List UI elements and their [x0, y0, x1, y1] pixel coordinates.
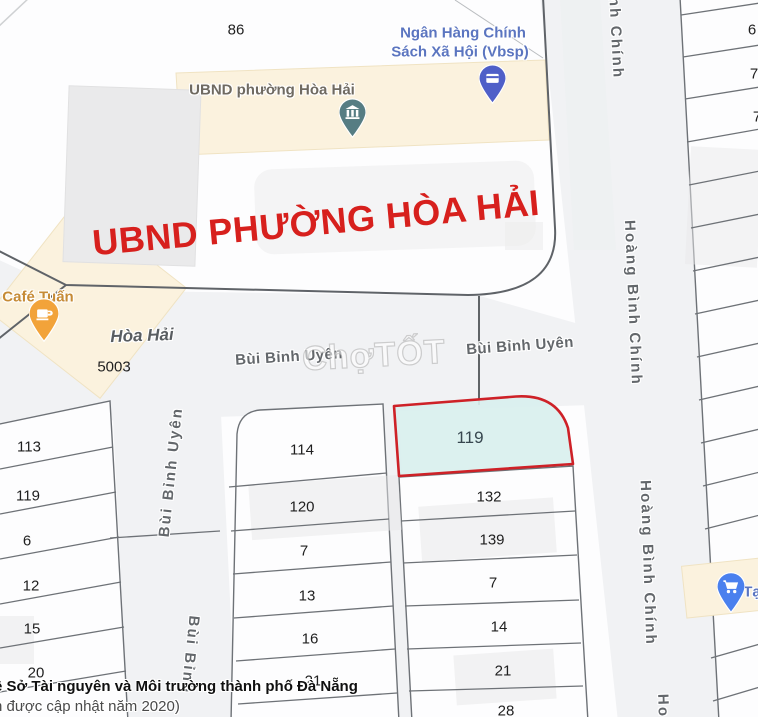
parcel-column-middle	[231, 404, 399, 717]
parcel-label-86: 86	[228, 22, 245, 39]
parcel-label: 28	[498, 703, 515, 717]
road-casing-topleft	[0, 0, 30, 28]
parcel-label: 16	[302, 631, 319, 648]
chotot-watermark: ChợTỐT	[301, 333, 446, 379]
cadastral-map[interactable]: 86 Ngân Hàng Chính Sách Xã Hội (Vbsp) UB…	[0, 0, 758, 717]
poi-bank-name-line1: Ngân Hàng Chính	[400, 24, 526, 43]
parcel-label: 7	[753, 109, 758, 126]
parcel-label: 120	[289, 499, 314, 516]
street-label-hoang-binh-chinh-d: Ho	[654, 694, 672, 717]
parcel-label: 6	[23, 533, 31, 550]
parcel-label: 132	[476, 489, 501, 506]
store-marker-pin[interactable]	[717, 572, 745, 613]
poi-store-name: Tạ	[743, 583, 758, 602]
parcel-label: 21	[495, 663, 512, 680]
parcel-label: 14	[491, 619, 508, 636]
parcel-label: 119	[16, 488, 40, 505]
locality-label: Hòa Hải	[110, 325, 174, 347]
parcel-label-highlight: 119	[456, 428, 483, 448]
parcel-label: 7	[300, 543, 308, 560]
poi-bank-name-line2: Sách Xã Hội (Vbsp)	[391, 43, 529, 62]
parcel-label: 12	[23, 578, 40, 595]
parcel-label: 113	[17, 439, 41, 456]
parcel-label: 6	[748, 22, 756, 39]
parcel-label: 7	[750, 66, 758, 83]
parcel-label: 15	[24, 621, 41, 638]
ubnd-marker-pin[interactable]	[339, 98, 366, 138]
poi-ubnd-name: UBND phường Hòa Hải	[189, 81, 355, 100]
parcel-label: 139	[479, 532, 504, 549]
map-attribution-source: ề Sở Tài nguyên và Môi trường thành phố …	[0, 678, 358, 695]
parcel-label: 7	[489, 575, 497, 592]
locality-code: 5003	[97, 359, 130, 376]
bank-marker-pin[interactable]	[479, 64, 506, 104]
bank-card-icon	[486, 74, 498, 83]
map-attribution-date: h được cập nhật năm 2020)	[0, 698, 180, 715]
parcel-label: 114	[290, 442, 314, 459]
parcel-label: 13	[299, 588, 316, 605]
cafe-marker-pin[interactable]	[29, 298, 59, 342]
